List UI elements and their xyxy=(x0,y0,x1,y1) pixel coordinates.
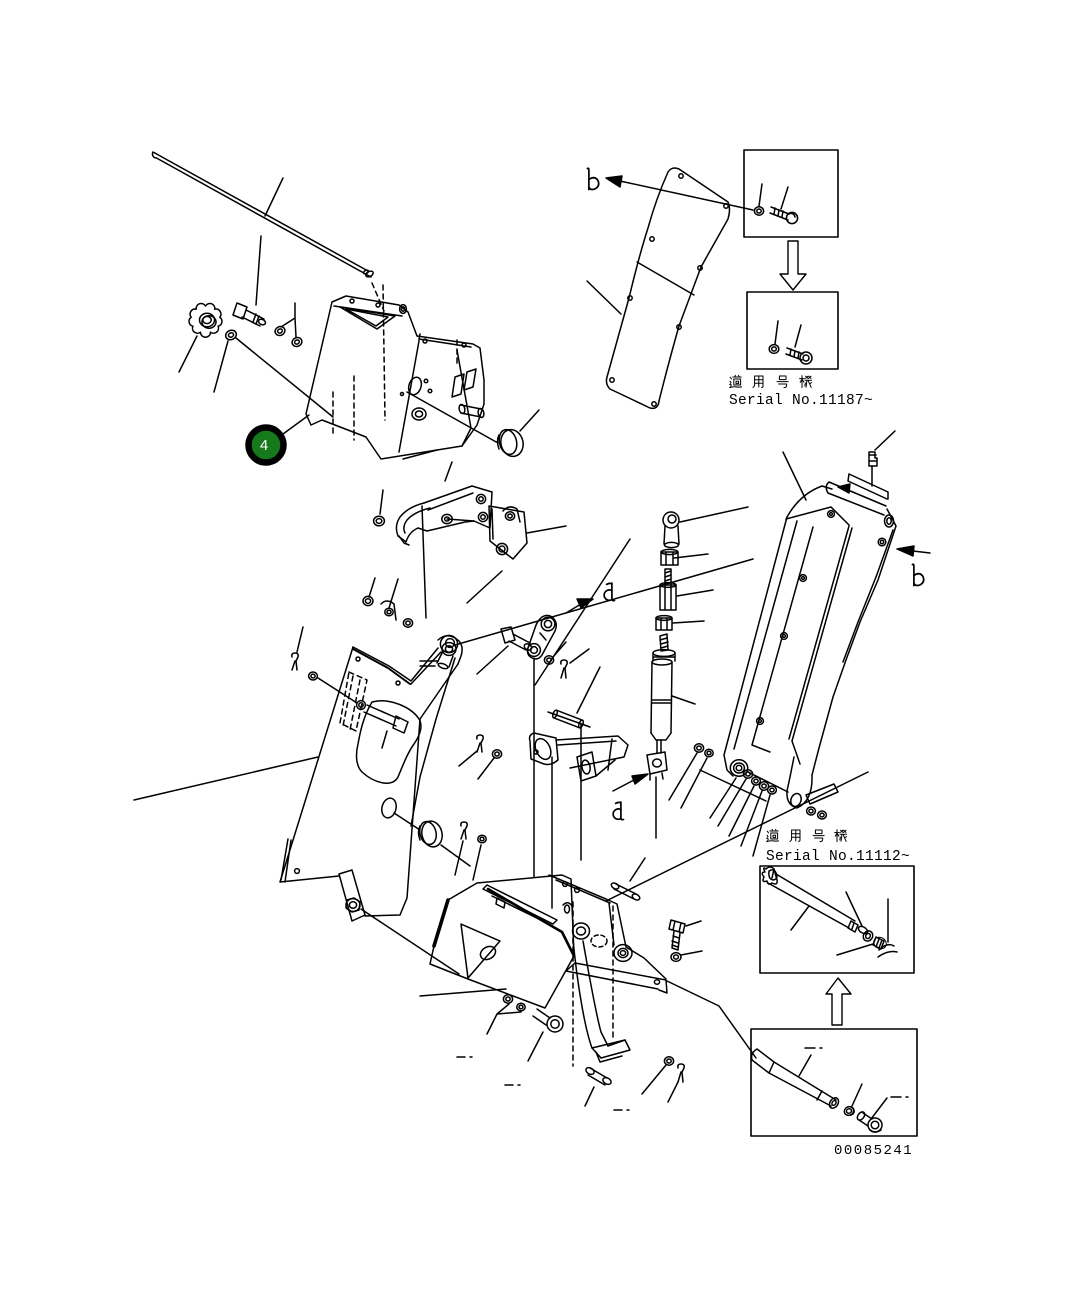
svg-text:4: 4 xyxy=(260,437,268,454)
svg-text:Serial No.11187~: Serial No.11187~ xyxy=(729,393,873,409)
svg-text:00085241: 00085241 xyxy=(834,1143,913,1159)
svg-text:Serial No.11112~: Serial No.11112~ xyxy=(766,849,910,865)
